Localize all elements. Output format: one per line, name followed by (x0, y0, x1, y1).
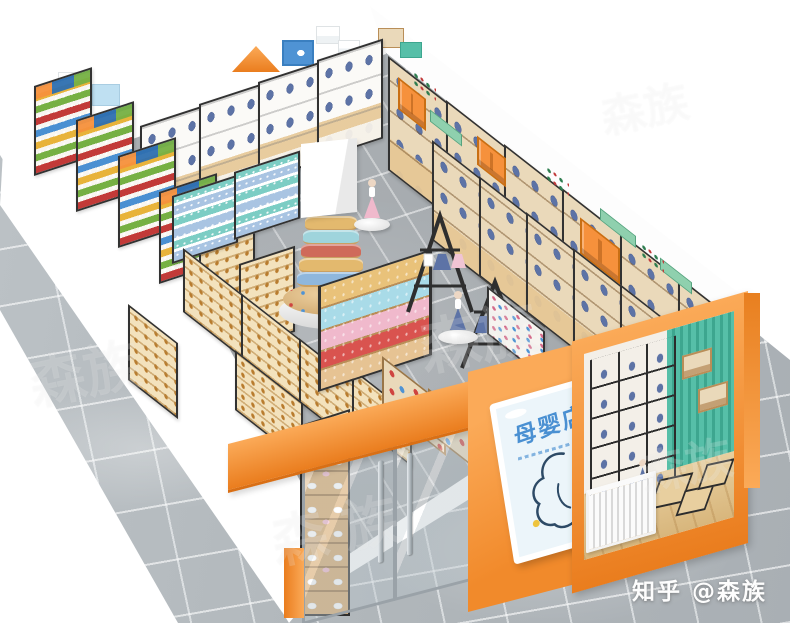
storefront-right-edge (744, 293, 760, 488)
door-handle (378, 460, 383, 563)
tower-product-ring (305, 216, 357, 231)
picture-box-decor (282, 40, 314, 66)
door-handle (407, 452, 412, 555)
tower-product-ring (301, 244, 361, 259)
store-3d-render: 母婴店 (0, 0, 790, 623)
display-window (572, 291, 748, 593)
display-tower-top (301, 138, 357, 218)
tower-product-ring (303, 230, 359, 245)
decor-box (400, 42, 422, 58)
window-scene (584, 311, 734, 560)
watermark-ghost: 森族 (594, 66, 693, 147)
decor-box (316, 26, 340, 44)
mannequin-stand (436, 294, 480, 344)
entrance-corner-pillar (284, 548, 304, 618)
decor-cabinet (92, 84, 120, 106)
tower-product-ring (299, 258, 363, 273)
mannequin-stand (352, 178, 392, 232)
watermark-credit: 知乎 @森族 (632, 572, 767, 606)
